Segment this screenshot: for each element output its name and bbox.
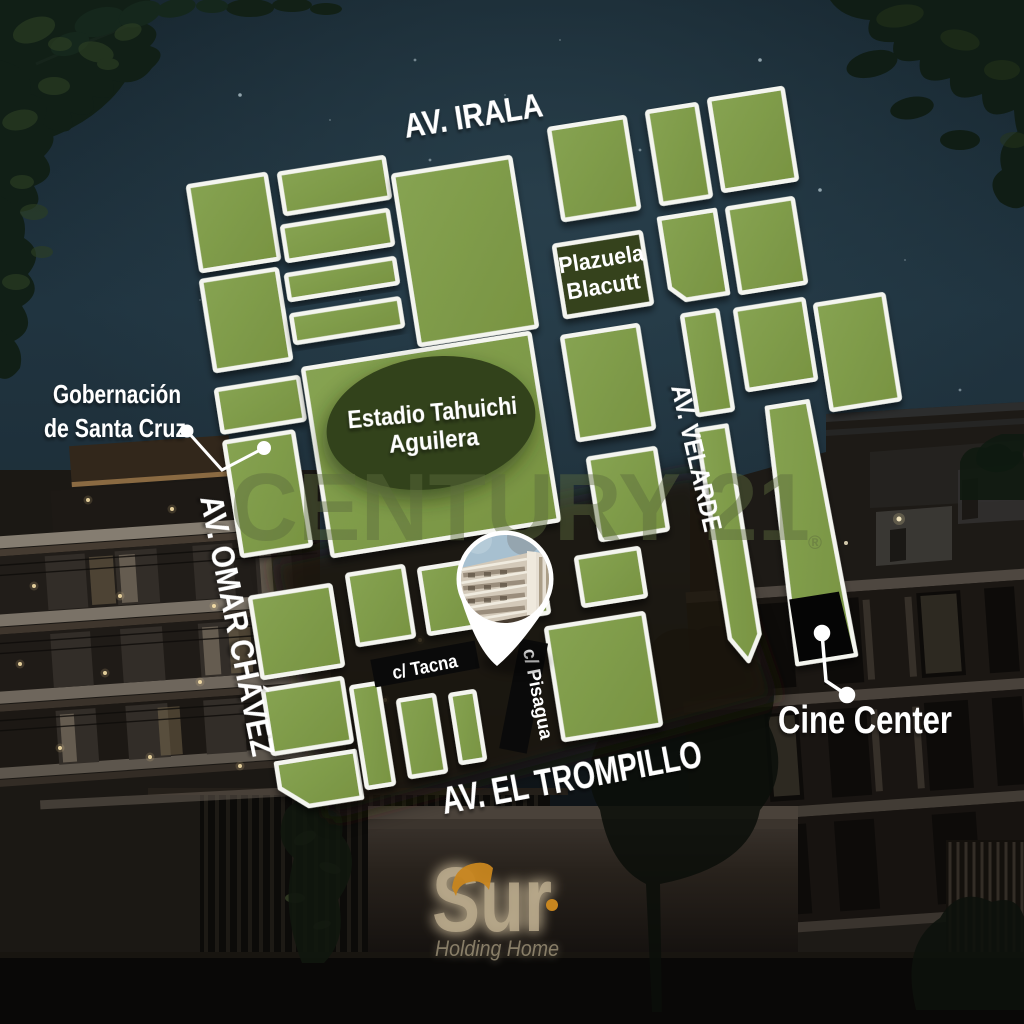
svg-text:Holding Home: Holding Home [435, 936, 559, 961]
svg-text:®: ® [808, 533, 822, 554]
svg-text:Cine Center: Cine Center [778, 699, 952, 742]
svg-text:Gobernación: Gobernación [53, 379, 181, 409]
svg-text:de Santa Cruz: de Santa Cruz [44, 413, 186, 443]
